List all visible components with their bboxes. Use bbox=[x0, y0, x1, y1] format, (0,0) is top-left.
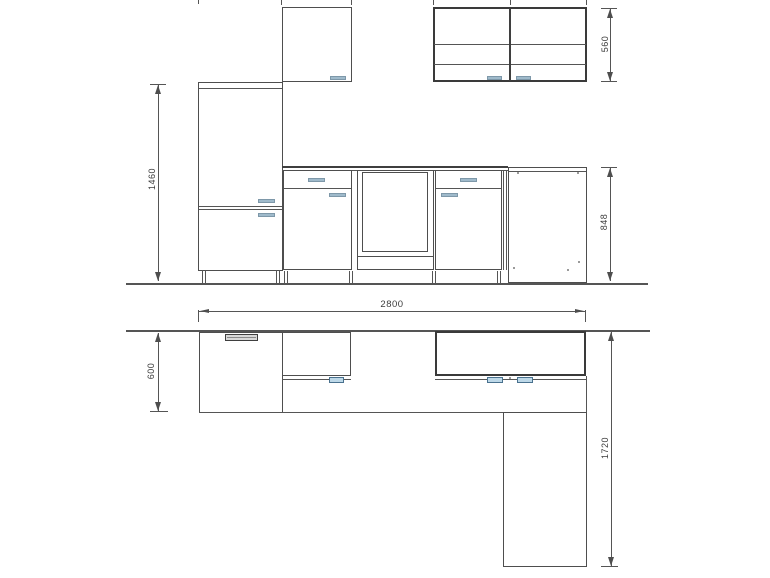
fixing-dot bbox=[517, 172, 519, 174]
dim-extension-tick bbox=[510, 0, 511, 5]
dim-extension-tick bbox=[281, 0, 282, 5]
wall-unit-handle-plan bbox=[329, 377, 344, 383]
plinth-leg bbox=[276, 270, 277, 283]
wall-unit-right-door-handle bbox=[516, 76, 531, 80]
plinth-leg bbox=[435, 271, 436, 283]
filler-joint bbox=[503, 170, 504, 270]
dim-extension-tick bbox=[198, 0, 199, 4]
floor-line bbox=[126, 283, 648, 285]
dim-label-return-length: 1720 bbox=[600, 428, 610, 468]
dim-extension-tick bbox=[351, 0, 352, 5]
appliance-lower-panel bbox=[357, 256, 434, 270]
divider-mark bbox=[509, 377, 511, 379]
fixing-dot bbox=[513, 267, 515, 269]
plinth-leg bbox=[205, 270, 206, 283]
door-handle bbox=[329, 193, 346, 197]
dim-label-tall-height: 1460 bbox=[147, 159, 157, 199]
tall-unit-lower-door-handle bbox=[258, 213, 275, 217]
plinth-leg bbox=[500, 271, 501, 283]
plinth-leg bbox=[202, 270, 203, 283]
dim-label-worktop-height: 848 bbox=[599, 202, 609, 242]
plinth-leg bbox=[284, 271, 285, 283]
tall-unit-upper-door-handle bbox=[258, 199, 275, 203]
worktop-front-edge bbox=[199, 412, 504, 413]
plinth-leg bbox=[279, 270, 280, 283]
wall-unit-left-door-handle bbox=[487, 76, 502, 80]
plinth-leg bbox=[352, 271, 353, 283]
filler-joint bbox=[506, 170, 507, 270]
drawer-handle bbox=[308, 178, 325, 182]
plinth-leg bbox=[349, 271, 350, 283]
dim-extension-tick bbox=[586, 0, 587, 5]
wall-unit-left-handle-plan bbox=[487, 377, 503, 383]
appliance-front-panel bbox=[362, 172, 428, 252]
door-handle bbox=[441, 193, 458, 197]
fixing-dot bbox=[567, 269, 569, 271]
plinth-leg bbox=[432, 271, 433, 283]
dim-label-counter-depth: 600 bbox=[146, 351, 156, 391]
wall-unit-door-handle bbox=[330, 76, 346, 80]
fixing-dot bbox=[577, 172, 579, 174]
tall-unit-handle-plan bbox=[225, 334, 258, 341]
counter-return-plan bbox=[503, 412, 587, 567]
plinth-leg bbox=[497, 271, 498, 283]
dim-label-total-width: 2800 bbox=[372, 299, 412, 310]
dim-label-wall-unit-height: 560 bbox=[600, 24, 610, 64]
kitchen-technical-drawing: 1460 bbox=[0, 0, 770, 578]
wall-unit-right-handle-plan bbox=[517, 377, 533, 383]
worktop-right-edge bbox=[586, 376, 587, 413]
fixing-dot bbox=[578, 261, 580, 263]
plinth-leg bbox=[287, 271, 288, 283]
dim-extension-tick bbox=[433, 0, 434, 5]
wall-unit-center-divider bbox=[509, 8, 511, 81]
drawer-handle bbox=[460, 178, 477, 182]
